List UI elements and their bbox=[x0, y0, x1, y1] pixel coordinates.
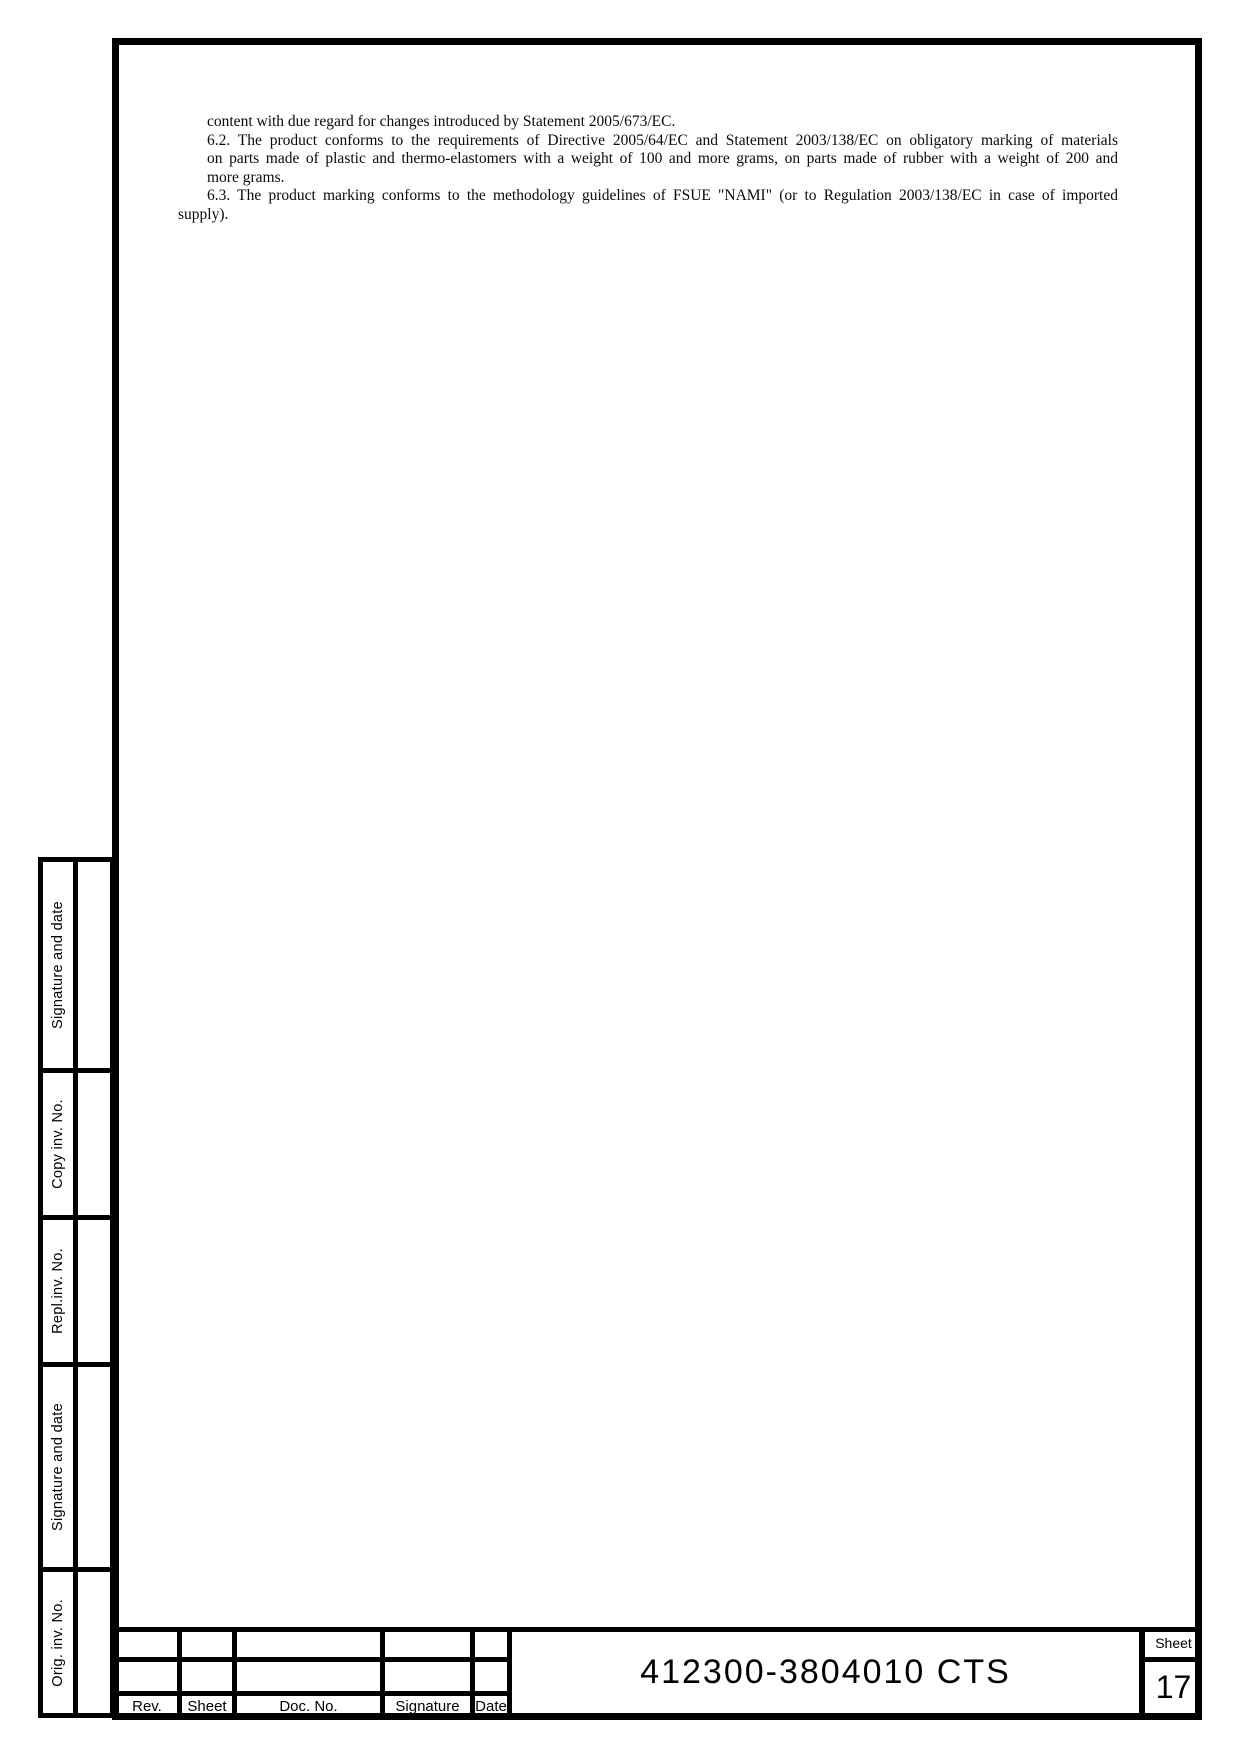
sidebar-label-column: Copy inv. No. bbox=[43, 1073, 78, 1215]
drawing-frame bbox=[112, 38, 1202, 1720]
sidebar-empty-column bbox=[78, 1073, 110, 1215]
body-text-line: 6.3. The product marking conforms to the… bbox=[207, 186, 1118, 205]
sidebar-section-label: Orig. inv. No. bbox=[50, 1599, 66, 1687]
sidebar-section-label: Signature and date bbox=[50, 901, 66, 1029]
sidebar-label-column: Repl.inv. No. bbox=[43, 1220, 78, 1362]
sidebar-empty-column bbox=[78, 1572, 110, 1713]
body-text-line: more grams. bbox=[207, 168, 284, 187]
sidebar-empty-column bbox=[78, 1220, 110, 1362]
sidebar-section-label: Repl.inv. No. bbox=[50, 1248, 66, 1334]
sidebar-label-column: Signature and date bbox=[43, 862, 78, 1068]
body-text-line: supply). bbox=[178, 205, 228, 224]
sidebar-section-signature-and-date-1: Signature and date bbox=[38, 857, 115, 1073]
titleblock-header-date: Date bbox=[475, 1696, 507, 1716]
titleblock-header-signature: Signature bbox=[385, 1696, 470, 1716]
titleblock-header-sheet: Sheet bbox=[182, 1696, 232, 1716]
sidebar-label-column: Signature and date bbox=[43, 1367, 78, 1567]
sheet-number: 17 bbox=[1145, 1662, 1202, 1712]
titleblock-gridline bbox=[112, 1657, 512, 1662]
body-text-line: on parts made of plastic and thermo-elas… bbox=[207, 149, 1118, 168]
sidebar-section-repl-inv-no: Repl.inv. No. bbox=[38, 1215, 115, 1367]
body-text-line: 6.2. The product conforms to the require… bbox=[207, 131, 1118, 150]
sidebar-section-signature-and-date-2: Signature and date bbox=[38, 1362, 115, 1572]
sidebar-section-orig-inv-no: Orig. inv. No. bbox=[38, 1567, 115, 1718]
document-number: 412300-3804010 CTS bbox=[512, 1627, 1139, 1718]
document-page: content with due regard for changes intr… bbox=[0, 0, 1240, 1754]
titleblock-header-rev: Rev. bbox=[117, 1696, 177, 1716]
titleblock-header-doc-no: Doc. No. bbox=[237, 1696, 380, 1716]
body-text-line: content with due regard for changes intr… bbox=[207, 112, 675, 131]
sidebar-section-copy-inv-no: Copy inv. No. bbox=[38, 1068, 115, 1220]
sheet-label: Sheet bbox=[1145, 1630, 1202, 1655]
sidebar-empty-column bbox=[78, 1367, 110, 1567]
sidebar-section-label: Copy inv. No. bbox=[50, 1099, 66, 1189]
sidebar-section-label: Signature and date bbox=[50, 1403, 66, 1531]
sidebar-label-column: Orig. inv. No. bbox=[43, 1572, 78, 1713]
sidebar-empty-column bbox=[78, 862, 110, 1068]
